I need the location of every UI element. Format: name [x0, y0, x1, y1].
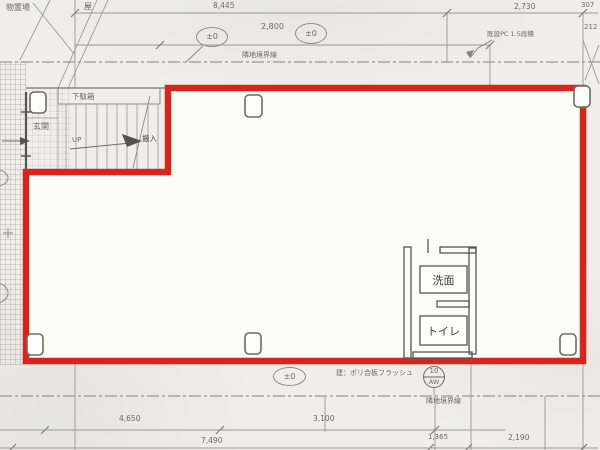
boundary-label-bottom: 隣地境界線 — [426, 396, 461, 406]
roof-label: 屋 — [84, 1, 92, 12]
washroom-label: 洗面 — [420, 272, 467, 288]
level-mark-bottom: ±0 — [273, 367, 306, 386]
dim-2190: 2,190 — [508, 433, 529, 442]
existing-wall-note: 既設PC 1.5段積 — [487, 28, 534, 38]
floor-plan-scan: 物置場 屋 8,445 2,800 2,730 307 212 ±0 ±0 隣地… — [0, 0, 600, 450]
boundary-label-top: 隣地境界線 — [242, 50, 277, 60]
toilet-label: トイレ — [420, 323, 467, 339]
dim-7490: 7,490 — [201, 436, 222, 445]
level-mark-top-left: ±0 — [196, 27, 228, 47]
window-tag-number: 10 — [424, 367, 444, 375]
window-tag-type: AW — [424, 378, 444, 386]
dim-4650: 4,650 — [119, 414, 140, 423]
entrance-label: 玄関 — [33, 121, 49, 132]
shoe-cabinet-label: 下駄箱 — [72, 91, 95, 102]
dim-8445: 8,445 — [213, 1, 234, 10]
highlight-outline — [26, 88, 583, 361]
dim-212: 212 — [584, 23, 597, 31]
level-mark-top-right: ±0 — [295, 23, 327, 44]
carry-in-label: 搬入 — [142, 133, 157, 144]
storage-label: 物置場 — [6, 2, 30, 13]
dim-1365: 1,365 — [428, 433, 448, 441]
left-edge-markers — [0, 170, 13, 303]
leader-lines — [186, 40, 492, 62]
stair-up-label: UP — [72, 136, 81, 144]
dim-2730: 2,730 — [514, 2, 535, 11]
dim-3100: 3,100 — [313, 414, 334, 423]
dim-307: 307 — [581, 1, 594, 9]
dim-2800: 2,800 — [261, 22, 284, 31]
flush-panel-note: 建：ポリ合板フラッシュ — [336, 368, 413, 378]
carry-in-arrow — [122, 134, 142, 147]
